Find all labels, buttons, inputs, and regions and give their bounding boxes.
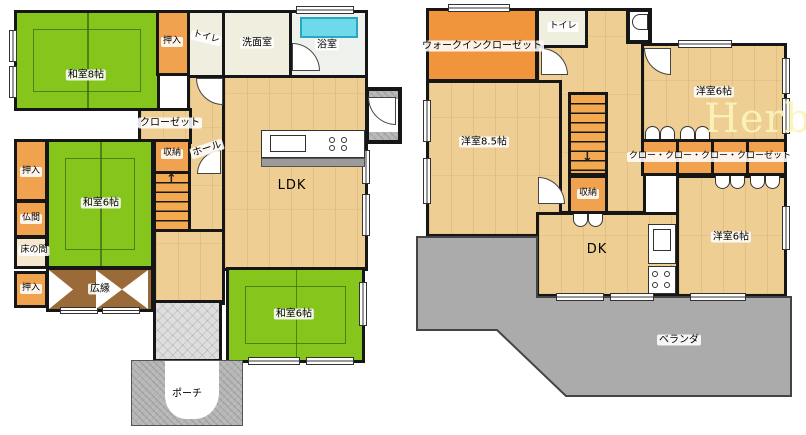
room-label: クロー・クロー・クロー・クローゼット xyxy=(627,152,793,162)
room-label: 押入 xyxy=(20,284,42,294)
window xyxy=(423,100,431,142)
bifold-door xyxy=(750,176,780,189)
stairs-up-arrow: ↑ xyxy=(166,172,177,187)
room-label: DK xyxy=(585,243,610,257)
entry-hatch xyxy=(369,132,398,140)
room-label: 押入 xyxy=(161,37,183,47)
window xyxy=(423,158,431,204)
bathtub xyxy=(300,17,358,38)
window xyxy=(782,206,790,250)
kitchen-sink-1f xyxy=(270,135,306,152)
room-label: 押入 xyxy=(20,167,42,177)
hall-corridor-lower-1f xyxy=(153,229,225,305)
room-label: 仏間 xyxy=(20,214,42,224)
room-label: 床の間 xyxy=(18,246,49,256)
window xyxy=(359,282,367,326)
window xyxy=(9,30,17,62)
room-label: 収納 xyxy=(161,149,183,159)
room-label: 洗面室 xyxy=(240,38,274,49)
room-label: 和室6帖 xyxy=(81,198,121,209)
window xyxy=(448,4,510,12)
room-label: LDK xyxy=(276,179,309,193)
kitchen-counter-edge-1f xyxy=(261,158,365,167)
bifold-door xyxy=(645,126,675,139)
window xyxy=(296,6,354,14)
room-label: クローゼット xyxy=(138,118,202,129)
window xyxy=(306,357,354,365)
room-label: 収納 xyxy=(577,189,599,199)
bifold-door xyxy=(573,214,603,227)
kitchen-sink-2f xyxy=(648,224,676,264)
room-label: トイレ xyxy=(547,22,578,32)
window xyxy=(610,293,654,301)
window xyxy=(556,293,604,301)
window xyxy=(102,307,140,314)
window xyxy=(60,307,98,314)
room-label: ベランダ xyxy=(657,335,701,346)
room-label: 洋室6帖 xyxy=(711,232,751,243)
room-label: ウォークインクローゼット xyxy=(420,41,544,52)
window xyxy=(248,357,300,365)
window xyxy=(690,293,746,301)
room-washitsu8-1f xyxy=(14,10,160,111)
room-ldk-1f xyxy=(222,75,368,271)
pipe-space-2f xyxy=(626,8,652,44)
watermark-text: Herb xyxy=(704,96,806,142)
kitchen-stove-2f xyxy=(648,266,676,294)
kitchen-stove-1f xyxy=(327,135,355,153)
stairs-down-arrow: ↓ xyxy=(582,150,593,165)
room-label: 和室8帖 xyxy=(66,70,106,81)
window xyxy=(362,194,370,236)
bifold-door xyxy=(715,176,745,189)
room-label: 洋室8.5帖 xyxy=(459,137,509,148)
window xyxy=(678,40,732,48)
room-label: 和室6帖 xyxy=(274,309,314,320)
entrance-genkan-1f xyxy=(153,300,222,362)
window xyxy=(9,66,17,98)
window xyxy=(782,58,790,94)
floorplan-canvas: ↑ 和室8帖 押入 トイレ 洗面室 浴室 クローゼット 収納 xyxy=(0,0,806,435)
ps-fixture xyxy=(632,14,648,30)
room-label: ポーチ xyxy=(170,389,204,400)
room-label: 浴室 xyxy=(315,40,339,51)
room-label: 広縁 xyxy=(88,284,112,295)
